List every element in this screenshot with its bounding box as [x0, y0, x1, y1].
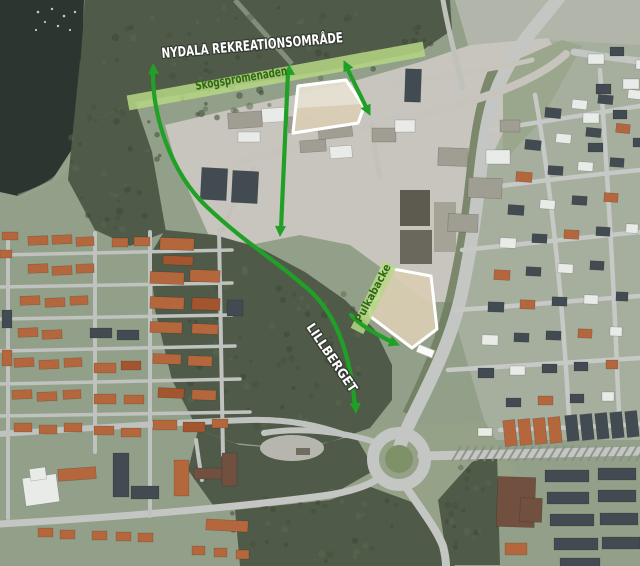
gravel-dark — [296, 448, 310, 455]
aerial-map: NYDALA REKREATIONSOMRÅDE Skogspromenaden… — [0, 0, 640, 566]
soil-patch — [400, 190, 430, 226]
gravel-clearing — [260, 435, 324, 461]
soil-patch — [400, 230, 432, 264]
